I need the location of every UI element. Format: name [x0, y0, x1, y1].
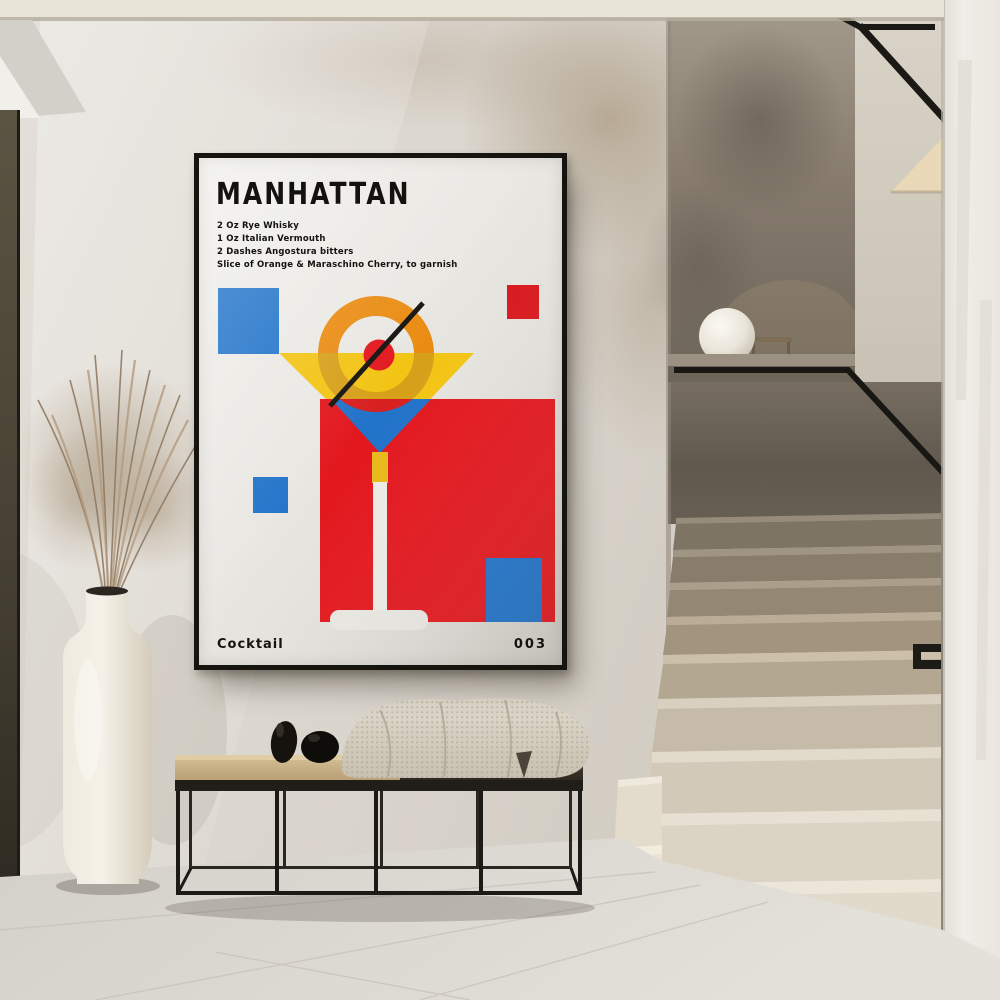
poster-recipe: 2 Oz Rye Whisky 1 Oz Italian Vermouth 2 …: [217, 220, 458, 272]
recipe-line-1: 2 Oz Rye Whisky: [217, 220, 458, 233]
bench-floor-shadow: [165, 894, 595, 922]
right-wall: [941, 0, 1000, 962]
throw-blanket: [342, 698, 590, 778]
poster-number-badge: 003: [514, 637, 547, 652]
poster-title: MANHATTAN: [216, 176, 411, 211]
recipe-line-3: 2 Dashes Angostura bitters: [217, 246, 458, 259]
ceiling: [0, 0, 944, 21]
poster-frame: MANHATTAN 2 Oz Rye Whisky 1 Oz Italian V…: [194, 153, 567, 670]
left-door-frame: [0, 110, 20, 878]
recipe-line-4: Slice of Orange & Maraschino Cherry, to …: [217, 259, 458, 272]
poster-footer-label: Cocktail: [217, 637, 284, 652]
recipe-line-2: 1 Oz Italian Vermouth: [217, 233, 458, 246]
photo-scene: MANHATTAN 2 Oz Rye Whisky 1 Oz Italian V…: [0, 0, 1000, 1000]
vase-mouth: [86, 587, 128, 596]
